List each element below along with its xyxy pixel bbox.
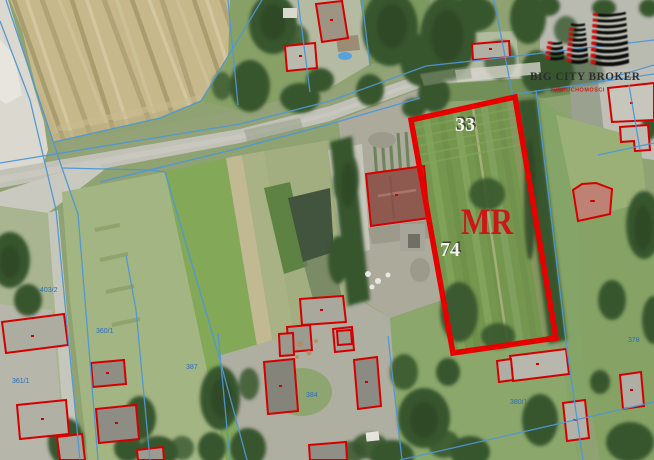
svg-text:BIG CITY BROKER: BIG CITY BROKER (530, 71, 641, 83)
svg-text:361/1: 361/1 (12, 378, 30, 385)
svg-text:378: 378 (628, 337, 640, 344)
svg-text:33: 33 (455, 114, 475, 136)
svg-text:74: 74 (440, 239, 460, 261)
svg-text:403/2: 403/2 (40, 287, 58, 294)
svg-text:380/1: 380/1 (510, 399, 528, 406)
svg-text:MR: MR (461, 202, 514, 243)
svg-text:384: 384 (306, 392, 318, 399)
svg-text:NIERUCHOMOŚCI: NIERUCHOMOŚCI (551, 87, 605, 94)
svg-text:360/1: 360/1 (96, 328, 114, 335)
svg-text:387: 387 (186, 364, 198, 371)
